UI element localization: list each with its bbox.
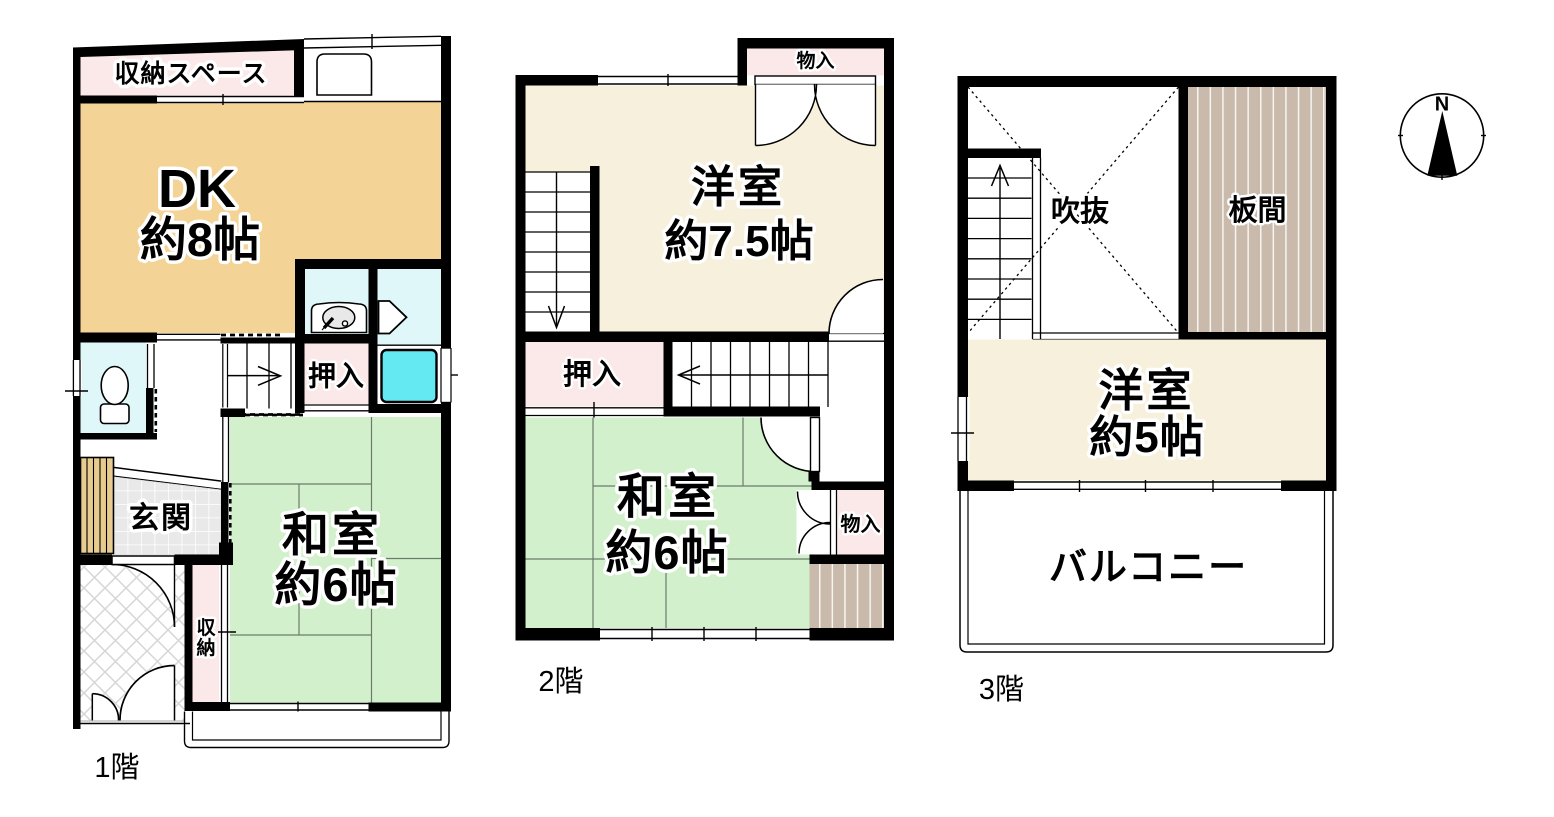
svg-text:収: 収 [196, 617, 216, 639]
svg-text:バルコニー: バルコニー [1049, 547, 1248, 589]
svg-text:吹抜: 吹抜 [1051, 195, 1110, 228]
svg-text:物入: 物入 [796, 49, 834, 72]
svg-text:約7.5帖: 約7.5帖 [664, 217, 813, 266]
svg-text:物入: 物入 [841, 512, 881, 536]
svg-text:約6帖: 約6帖 [605, 526, 728, 579]
svg-text:洋室: 洋室 [1098, 365, 1194, 416]
svg-text:1階: 1階 [94, 752, 139, 784]
svg-text:N: N [1435, 94, 1449, 116]
svg-text:約8帖: 約8帖 [140, 213, 260, 266]
svg-text:押入: 押入 [308, 360, 364, 392]
svg-text:収納スペース: 収納スペース [114, 59, 267, 88]
svg-text:DK: DK [158, 159, 236, 219]
svg-text:和室: 和室 [617, 471, 719, 524]
svg-text:2階: 2階 [538, 666, 583, 698]
svg-text:和室: 和室 [282, 508, 382, 561]
svg-text:押入: 押入 [563, 358, 621, 391]
svg-text:3階: 3階 [979, 674, 1024, 706]
svg-text:洋室: 洋室 [691, 162, 785, 212]
svg-text:納: 納 [196, 636, 215, 659]
svg-text:玄関: 玄関 [129, 501, 193, 535]
svg-text:約6帖: 約6帖 [274, 558, 397, 611]
svg-text:約5帖: 約5帖 [1089, 413, 1204, 462]
svg-text:板間: 板間 [1228, 194, 1286, 227]
